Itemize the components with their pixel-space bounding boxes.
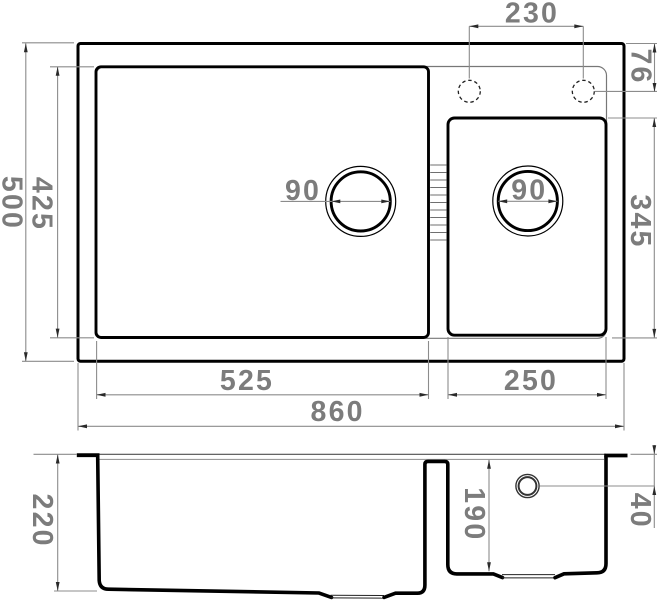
svg-text:860: 860 (311, 396, 365, 428)
svg-text:250: 250 (504, 365, 558, 397)
svg-text:220: 220 (26, 494, 58, 548)
svg-text:230: 230 (505, 0, 559, 30)
svg-text:425: 425 (25, 177, 57, 231)
svg-text:525: 525 (220, 365, 274, 397)
svg-text:500: 500 (0, 176, 28, 230)
svg-text:345: 345 (624, 194, 656, 248)
svg-text:90: 90 (285, 175, 321, 207)
svg-text:76: 76 (625, 48, 657, 84)
svg-text:90: 90 (511, 175, 547, 207)
svg-text:40: 40 (624, 493, 656, 529)
svg-text:190: 190 (458, 487, 490, 541)
